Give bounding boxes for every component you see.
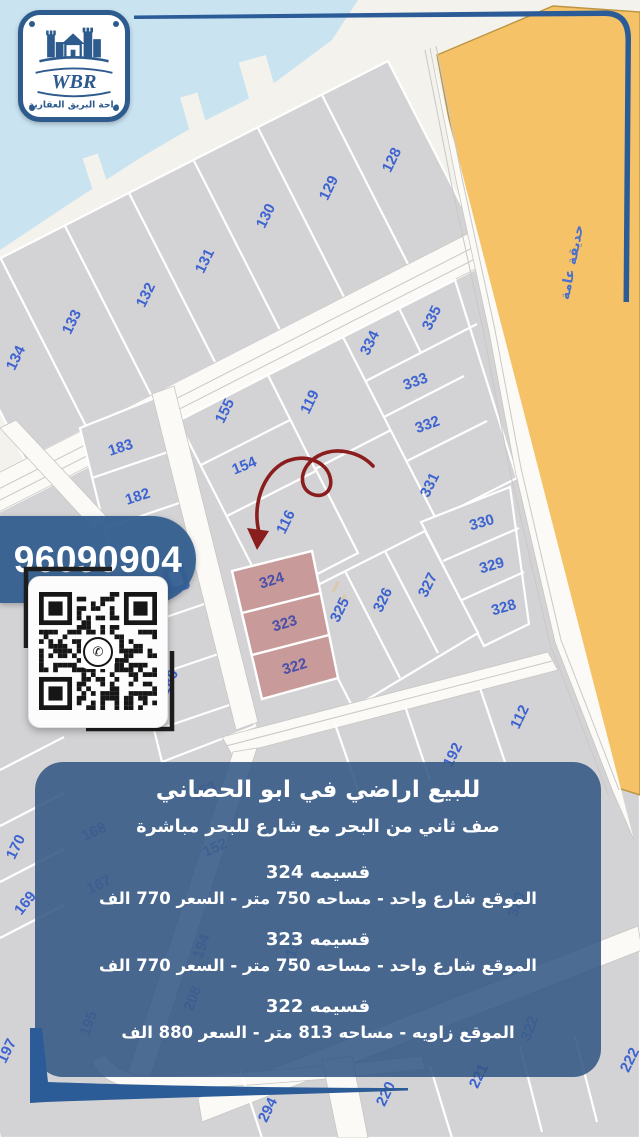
company-logo: WBR واحة البريق العقارية <box>18 10 130 122</box>
logo-tagline: واحة البريق العقارية <box>29 100 120 110</box>
real-estate-flyer: { "logo": { "brand": "WBR", "tagline": "… <box>0 0 640 1138</box>
listing-item-323: قسيمه 323 الموقع شارع واحد - مساحه 750 م… <box>53 929 583 975</box>
listing-item-322: قسيمه 322 الموقع زاويه - مساحه 813 متر -… <box>53 996 583 1042</box>
listing-details: الموقع شارع واحد - مساحه 750 متر - السعر… <box>53 889 583 908</box>
qr-section: ✆ <box>0 555 210 745</box>
listing-details: الموقع شارع واحد - مساحه 750 متر - السعر… <box>53 956 583 975</box>
logo-screw-dot <box>113 21 119 27</box>
listing-details: الموقع زاويه - مساحه 813 متر - السعر 880… <box>53 1023 583 1042</box>
logo-brand-text: WBR <box>52 71 97 93</box>
whatsapp-qr-code: ✆ <box>28 576 168 728</box>
panel-title: للبيع اراضي في ابو الحصاني <box>53 777 583 803</box>
listing-info-panel: للبيع اراضي في ابو الحصاني صف ثاني من ال… <box>35 762 601 1077</box>
listing-item-324: قسيمه 324 الموقع شارع واحد - مساحه 750 م… <box>53 862 583 908</box>
listing-name: قسيمه 322 <box>53 996 583 1017</box>
whatsapp-icon: ✆ <box>81 635 115 669</box>
listing-name: قسيمه 324 <box>53 862 583 883</box>
panel-subtitle: صف ثاني من البحر مع شارع للبحر مباشرة <box>53 817 583 837</box>
logo-screw-dot <box>29 105 35 111</box>
listing-name: قسيمه 323 <box>53 929 583 950</box>
logo-screw-dot <box>29 21 35 27</box>
castle-icon: WBR واحة البريق العقارية <box>25 19 123 115</box>
logo-screw-dot <box>113 105 119 111</box>
